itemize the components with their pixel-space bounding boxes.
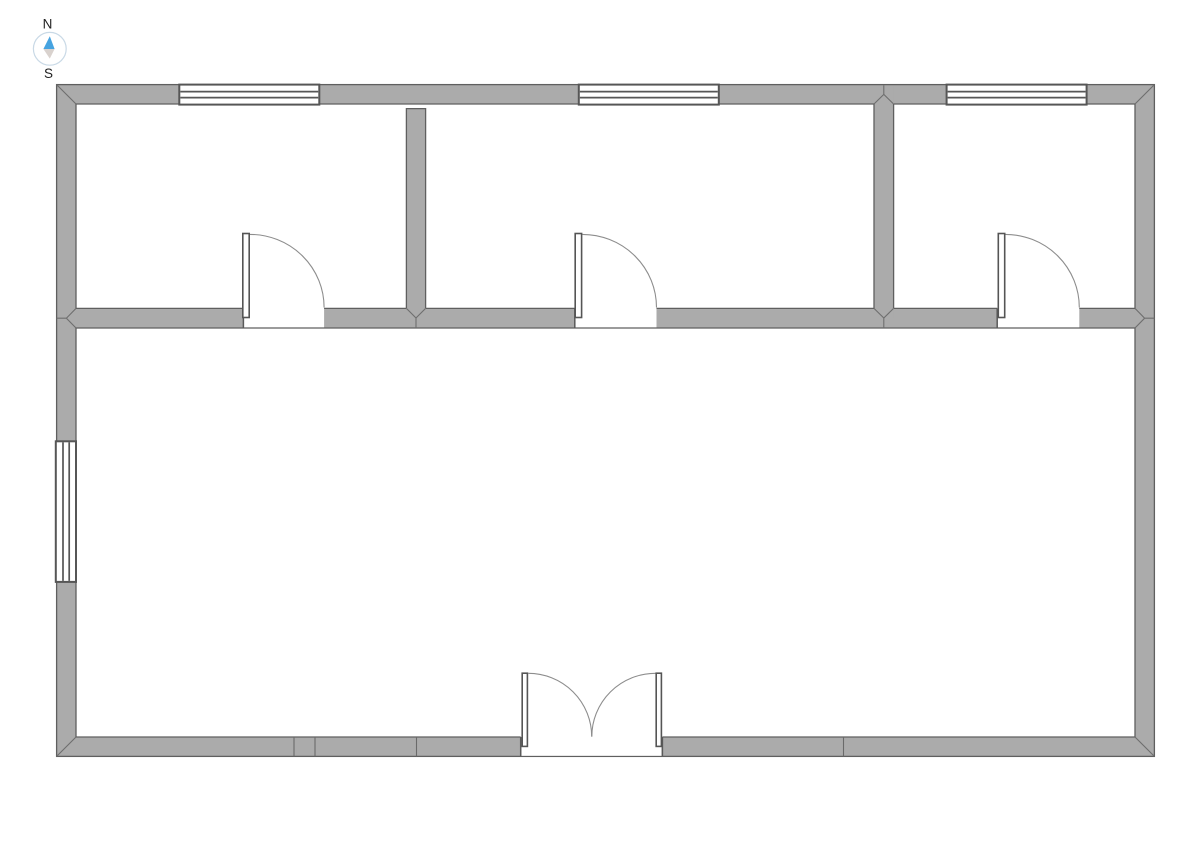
svg-text:S: S: [44, 66, 53, 81]
svg-text:N: N: [43, 17, 53, 32]
